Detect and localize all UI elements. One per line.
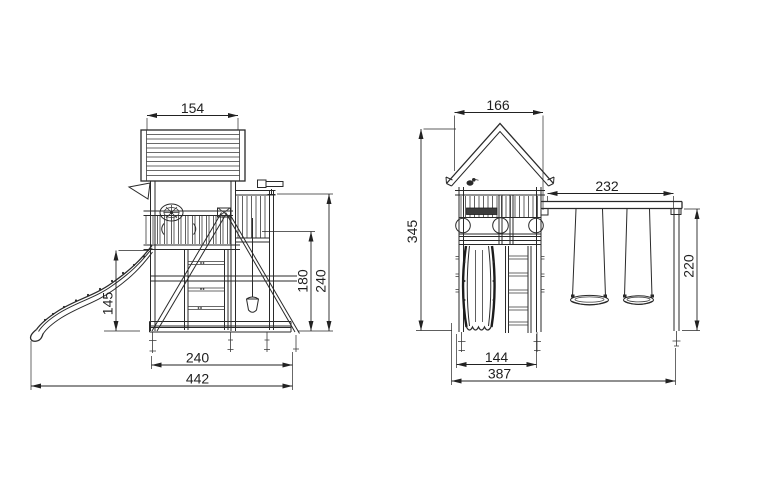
side-view: 154 145 180 240 240: [31, 100, 333, 390]
dim-label-220: 220: [681, 254, 697, 278]
bird: [467, 178, 479, 186]
dim-label-166: 166: [486, 97, 510, 113]
dim-label-387: 387: [488, 366, 512, 382]
dim-side-overall-length: 442: [31, 341, 293, 390]
dim-label-145: 145: [100, 292, 116, 316]
side-climbing-wall: [185, 250, 229, 330]
dim-front-roof-width: 166: [455, 97, 544, 210]
telescope: [258, 180, 284, 195]
dim-label-180: 180: [295, 269, 311, 293]
dim-side-base-depth: 240: [152, 350, 293, 370]
steering-wheel: [160, 204, 183, 221]
side-tower-posts: [151, 181, 236, 331]
side-deck: [144, 245, 241, 250]
dim-label-232: 232: [595, 178, 619, 194]
dim-side-platform-height: 145: [100, 251, 150, 332]
ladder-front: [506, 246, 532, 333]
side-roof: [141, 130, 245, 181]
dim-side-roof-width: 154: [147, 100, 238, 130]
dim-label-442: 442: [186, 371, 210, 387]
swing-right: [623, 209, 654, 305]
swing-beam: [541, 202, 682, 347]
side-balcony: [236, 191, 276, 331]
playground-technical-drawing: 154 145 180 240 240: [0, 0, 770, 490]
dim-label-144: 144: [485, 349, 509, 365]
dim-label-154: 154: [181, 100, 205, 116]
dim-front-beam-length: 232: [548, 178, 674, 208]
dim-side-rail-height: 240: [277, 194, 333, 331]
dim-front-tower-width: 144: [457, 334, 537, 368]
dim-front-frame-height: 220: [681, 209, 701, 331]
drawing-canvas: 154 145 180 240 240: [0, 0, 770, 490]
side-ground-anchors: [149, 332, 299, 353]
side-awning: [129, 183, 150, 199]
front-roof: [446, 124, 554, 187]
front-platform: [459, 237, 541, 245]
dim-front-overall-height: 345: [404, 129, 456, 331]
dim-label-240-horizontal: 240: [186, 350, 210, 366]
slide-bolts: [44, 255, 145, 321]
slide-front: [463, 246, 495, 330]
swing-left: [571, 209, 609, 305]
dim-label-345: 345: [404, 220, 420, 244]
dim-label-240-vertical: 240: [313, 269, 329, 293]
slide-side: [31, 246, 153, 342]
front-view: 166 345 232 220 144: [404, 97, 700, 385]
step-bar: [467, 208, 498, 215]
